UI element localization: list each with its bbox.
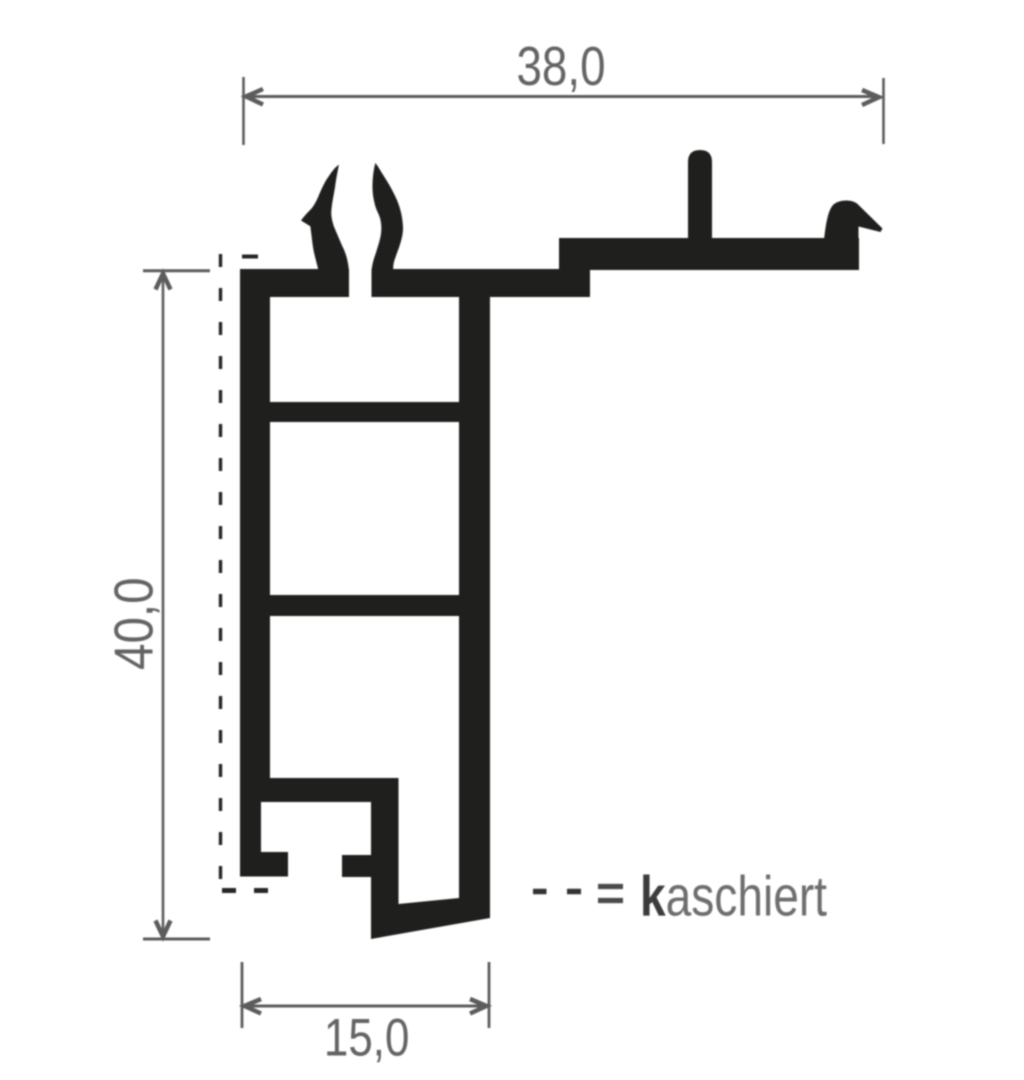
svg-text:15,0: 15,0 bbox=[324, 1008, 410, 1067]
svg-text:kaschiert: kaschiert bbox=[640, 865, 827, 929]
svg-text:40,0: 40,0 bbox=[102, 577, 164, 670]
svg-text:38,0: 38,0 bbox=[517, 35, 606, 97]
